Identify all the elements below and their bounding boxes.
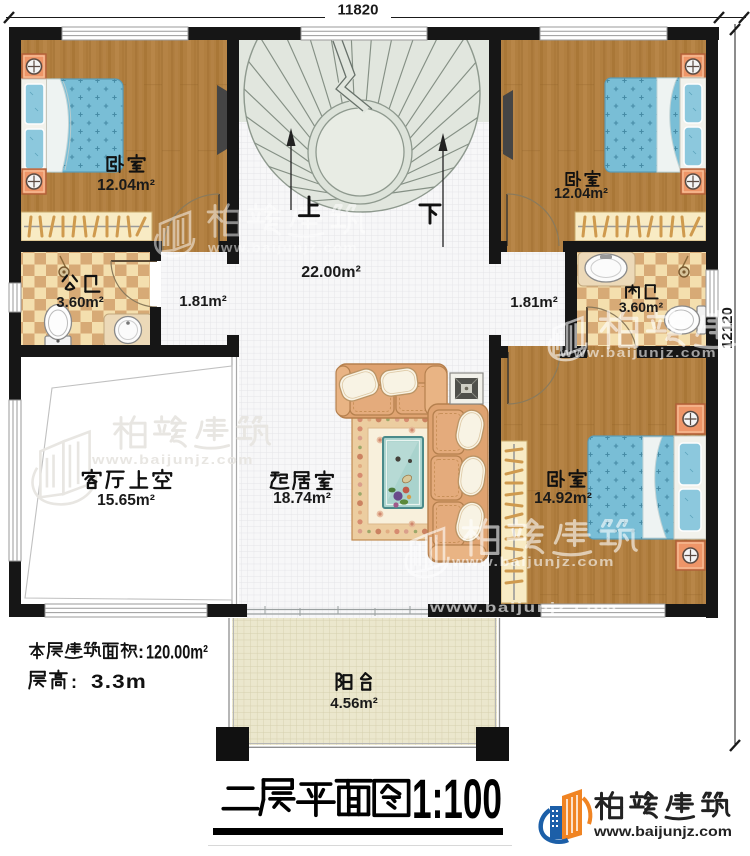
svg-text:3.60m²: 3.60m²	[56, 294, 104, 311]
svg-text:22.00m²: 22.00m²	[301, 264, 361, 281]
svg-text:3.60m²: 3.60m²	[619, 299, 664, 315]
svg-text:www.baijunjz.com: www.baijunjz.com	[559, 345, 717, 360]
svg-text:1:100: 1:100	[412, 767, 502, 830]
svg-text:www.baijunjz.com: www.baijunjz.com	[593, 824, 732, 839]
svg-text:1.81m²: 1.81m²	[179, 293, 227, 310]
svg-text:www.baijunjz.com: www.baijunjz.com	[429, 599, 618, 615]
svg-text:www.baijunjz.com: www.baijunjz.com	[91, 452, 254, 467]
svg-text:1.81m²: 1.81m²	[510, 294, 558, 311]
svg-text:12.04m²: 12.04m²	[554, 186, 608, 202]
svg-text:120.00m²: 120.00m²	[146, 643, 208, 664]
svg-text::: :	[138, 642, 144, 662]
svg-text:15.65m²: 15.65m²	[97, 492, 155, 509]
svg-text:4.56m²: 4.56m²	[330, 695, 378, 712]
svg-text:18.74m²: 18.74m²	[273, 490, 331, 507]
svg-text:12.04m²: 12.04m²	[97, 177, 155, 194]
svg-text:www.baijunjz.com: www.baijunjz.com	[451, 554, 615, 569]
svg-text:www.baijunjz.com: www.baijunjz.com	[207, 240, 358, 255]
svg-text:3.3m: 3.3m	[91, 671, 147, 693]
svg-text:11820: 11820	[338, 2, 379, 19]
svg-text:14.92m²: 14.92m²	[534, 490, 592, 507]
svg-text::: :	[71, 672, 77, 692]
